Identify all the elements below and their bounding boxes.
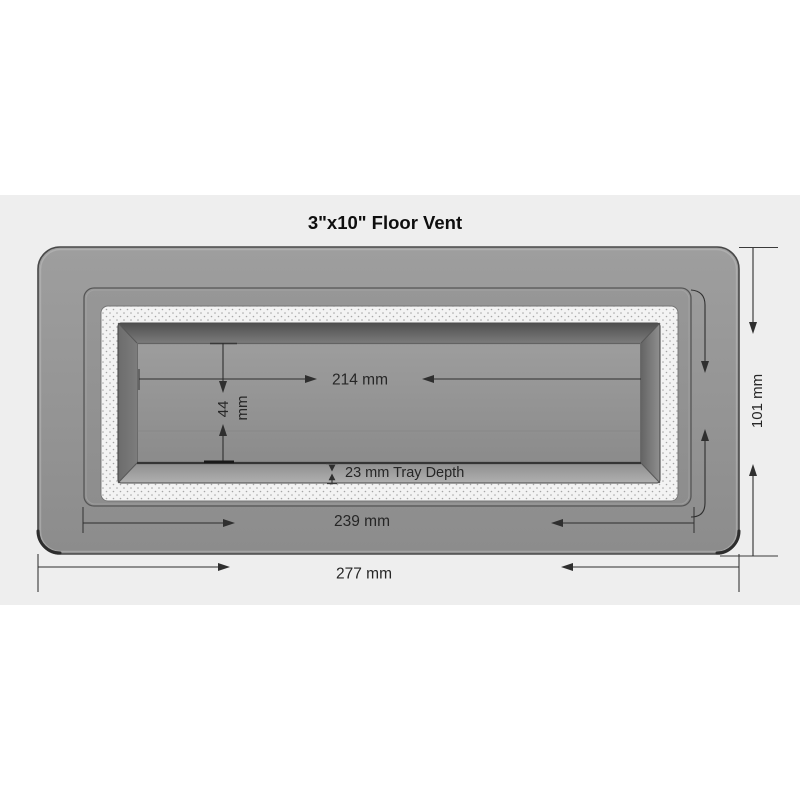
dim-frame-width-label: 239 mm — [334, 513, 390, 530]
dim-tray-depth-label: 23 mm Tray Depth — [345, 465, 464, 481]
tray-wall-right — [641, 323, 660, 483]
screenshot-stage: 3"x10" Floor Vent — [0, 0, 800, 800]
tray-floor-surface — [137, 343, 641, 463]
tray-floor — [137, 343, 641, 463]
tray-wall-left — [118, 323, 137, 483]
figure-title: 3"x10" Floor Vent — [308, 212, 462, 233]
tray-wall-top — [118, 323, 660, 343]
dim-tray-width-label: 214 mm — [332, 372, 388, 389]
dim-overall-width-label: 277 mm — [336, 566, 392, 583]
floor-vent-diagram: 3"x10" Floor Vent — [0, 0, 800, 800]
dim-tray-height-value: 44 — [215, 401, 232, 418]
dim-overall-height-label: 101 mm — [749, 374, 766, 428]
dim-tray-height-unit: mm — [234, 396, 251, 421]
vent-body — [38, 247, 739, 554]
